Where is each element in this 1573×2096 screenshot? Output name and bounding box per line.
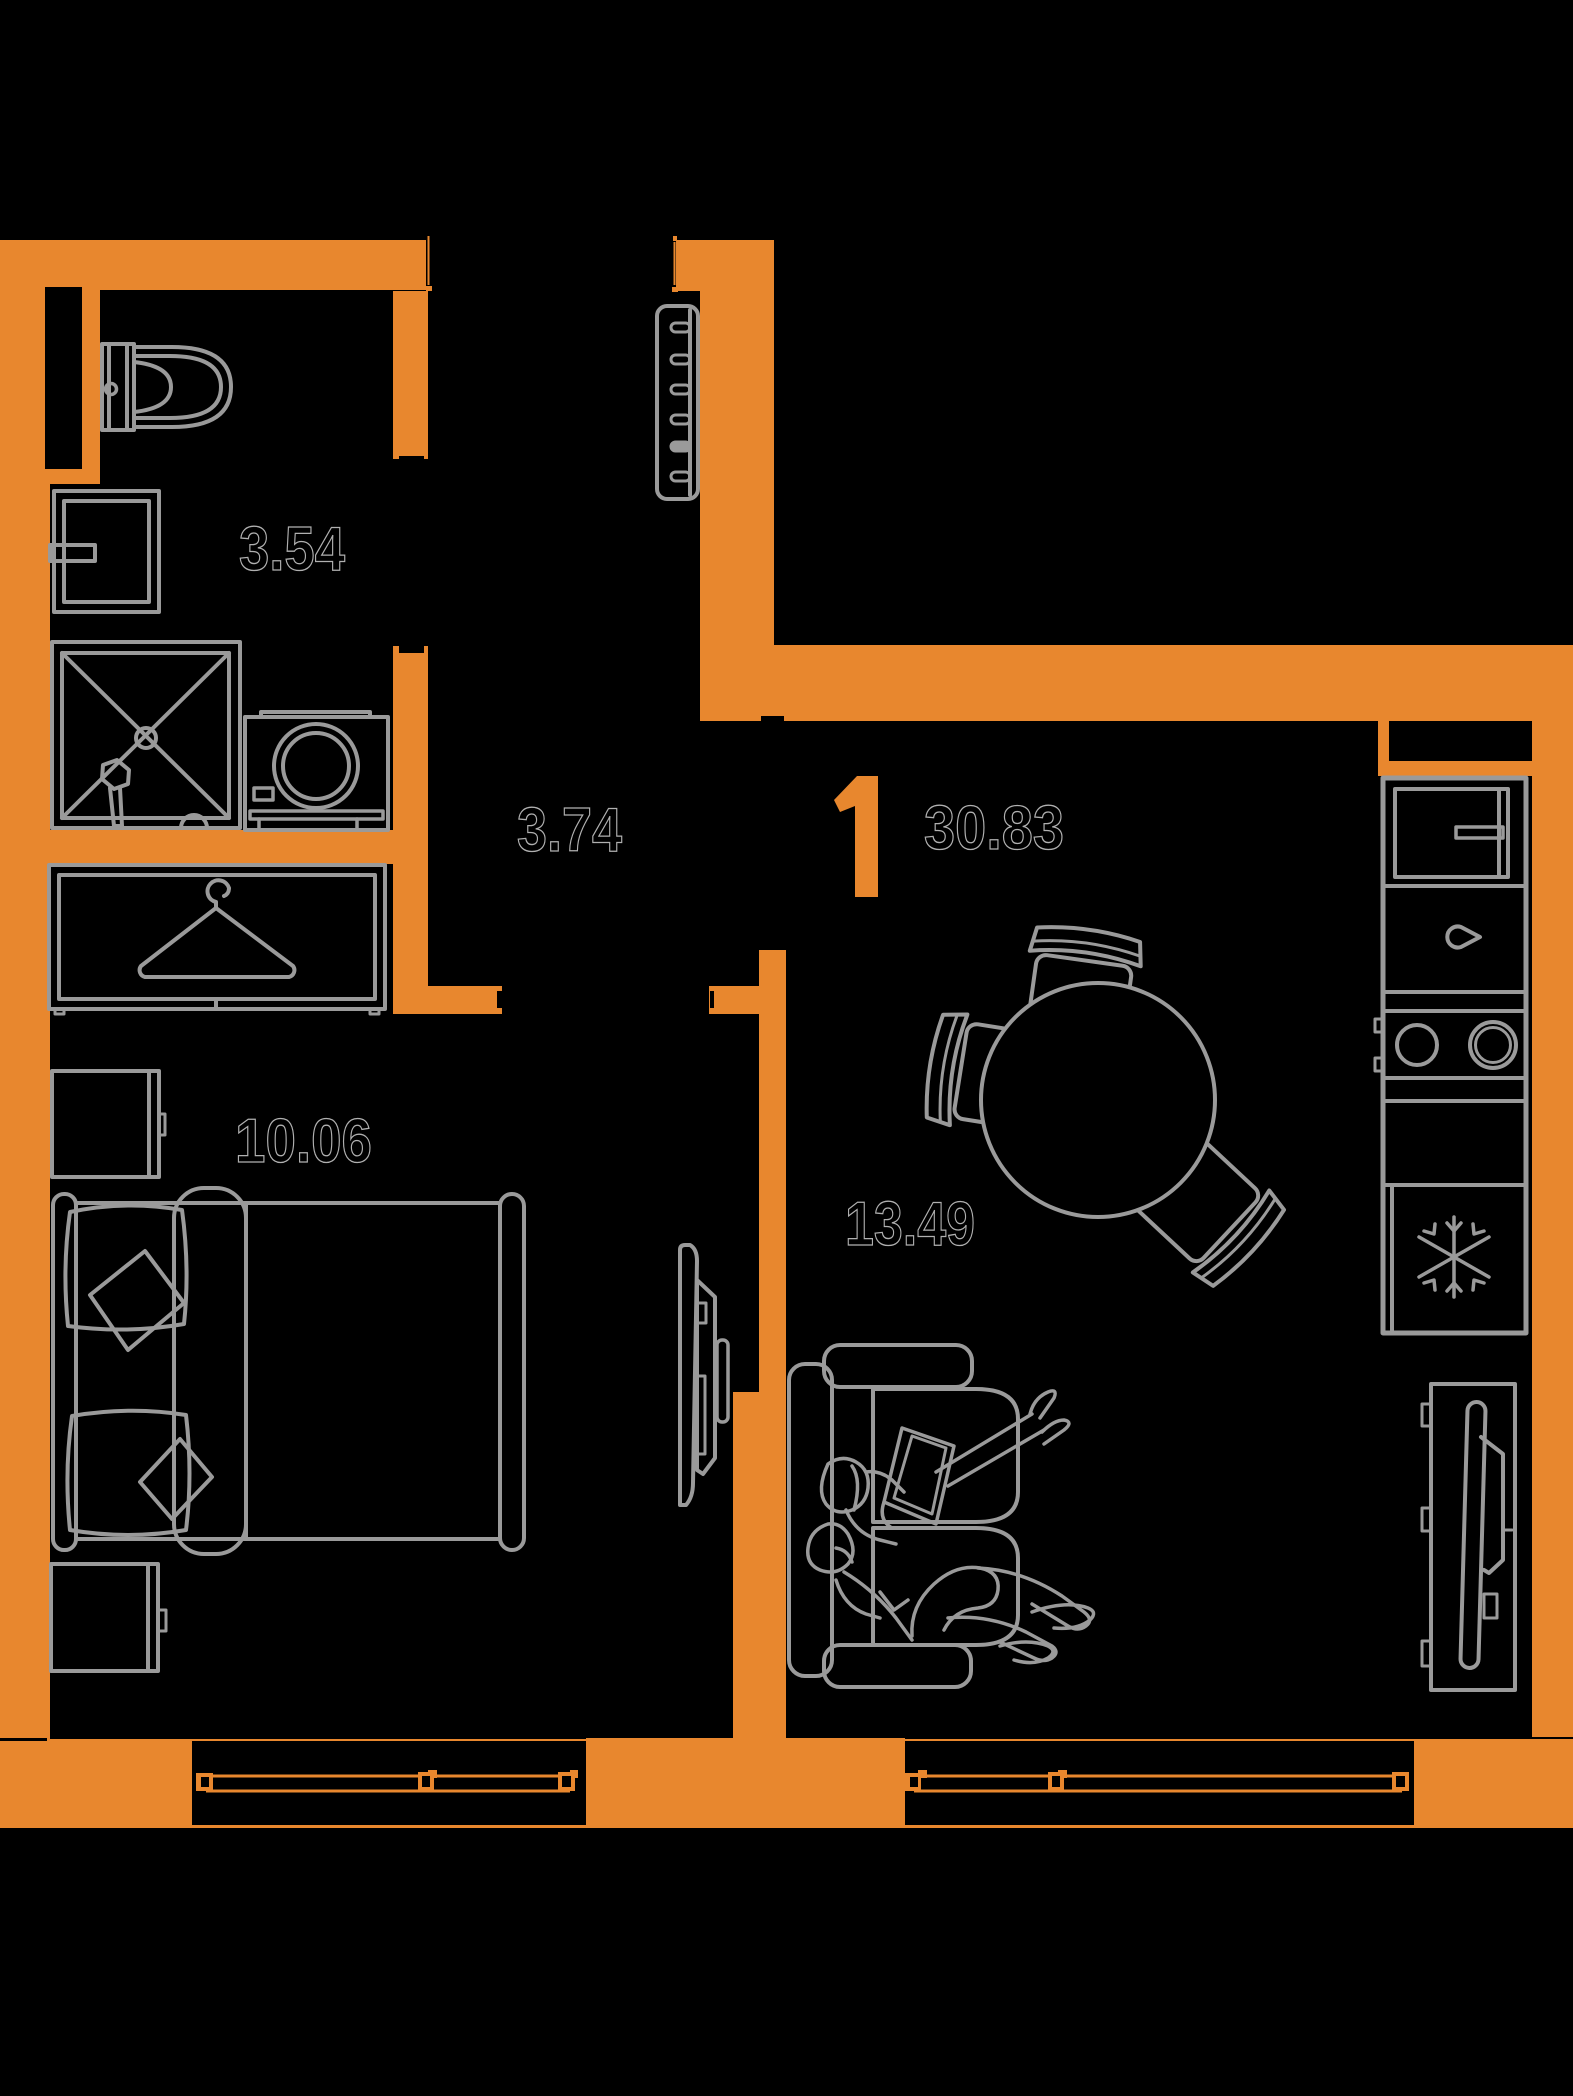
svg-text:3.54: 3.54 <box>239 515 345 584</box>
svg-text:30.83: 30.83 <box>924 794 1064 863</box>
svg-text:10.06: 10.06 <box>235 1107 372 1176</box>
svg-text:3.74: 3.74 <box>517 796 622 865</box>
svg-text:13.49: 13.49 <box>845 1190 975 1259</box>
